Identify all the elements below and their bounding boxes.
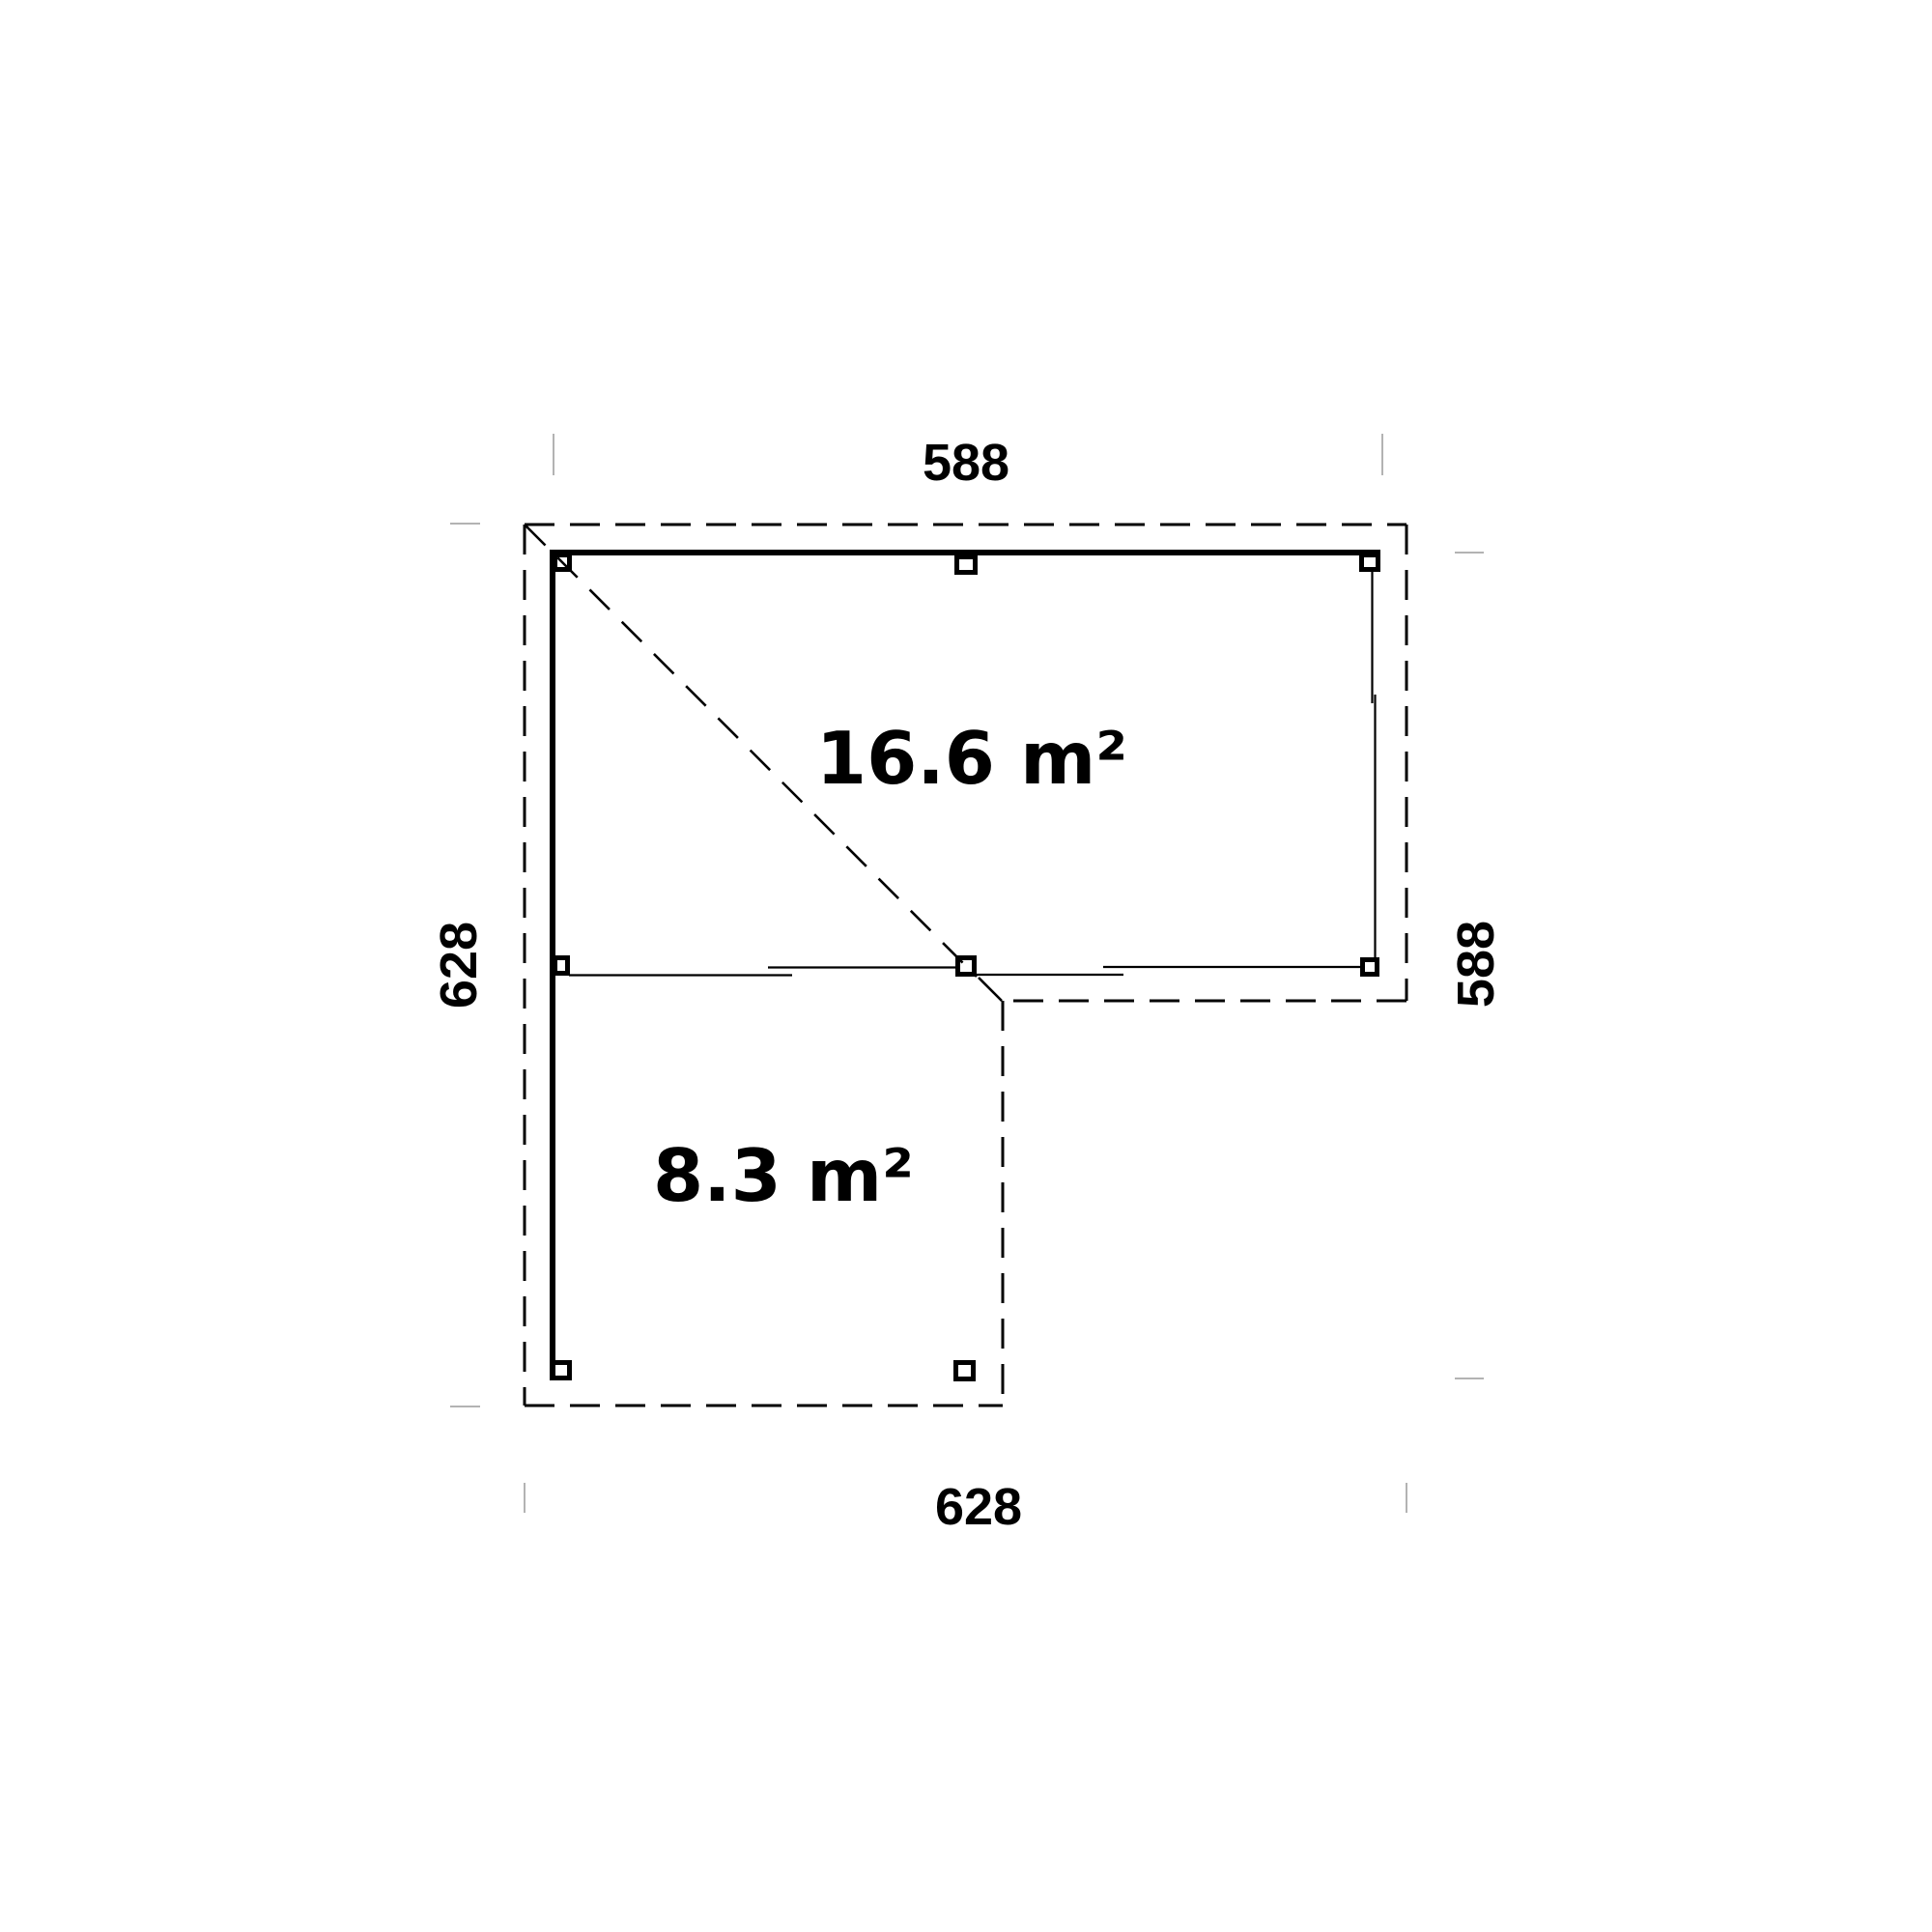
post-top-right [1362, 555, 1378, 570]
post-bottom-right [956, 1363, 974, 1379]
post-bottom-left [554, 1363, 570, 1378]
dimension-label-top: 588 [923, 434, 1009, 492]
post-top-middle [957, 557, 976, 573]
floor-plan-page: 588 588 628 628 16.6 m² 8.3 m² [0, 0, 1932, 1932]
dimension-label-bottom: 628 [935, 1478, 1022, 1536]
dimension-label-left: 628 [430, 922, 488, 1009]
diagonal-solid-segment [979, 978, 1002, 1001]
area-label-wing: 8.3 m² [653, 1133, 914, 1218]
post-middle-right [1363, 960, 1378, 975]
floor-plan-drawing: 588 588 628 628 16.6 m² 8.3 m² [0, 0, 1932, 1932]
area-label-main: 16.6 m² [816, 716, 1127, 801]
dimension-label-right: 588 [1447, 921, 1505, 1008]
post-middle-left [555, 958, 568, 974]
